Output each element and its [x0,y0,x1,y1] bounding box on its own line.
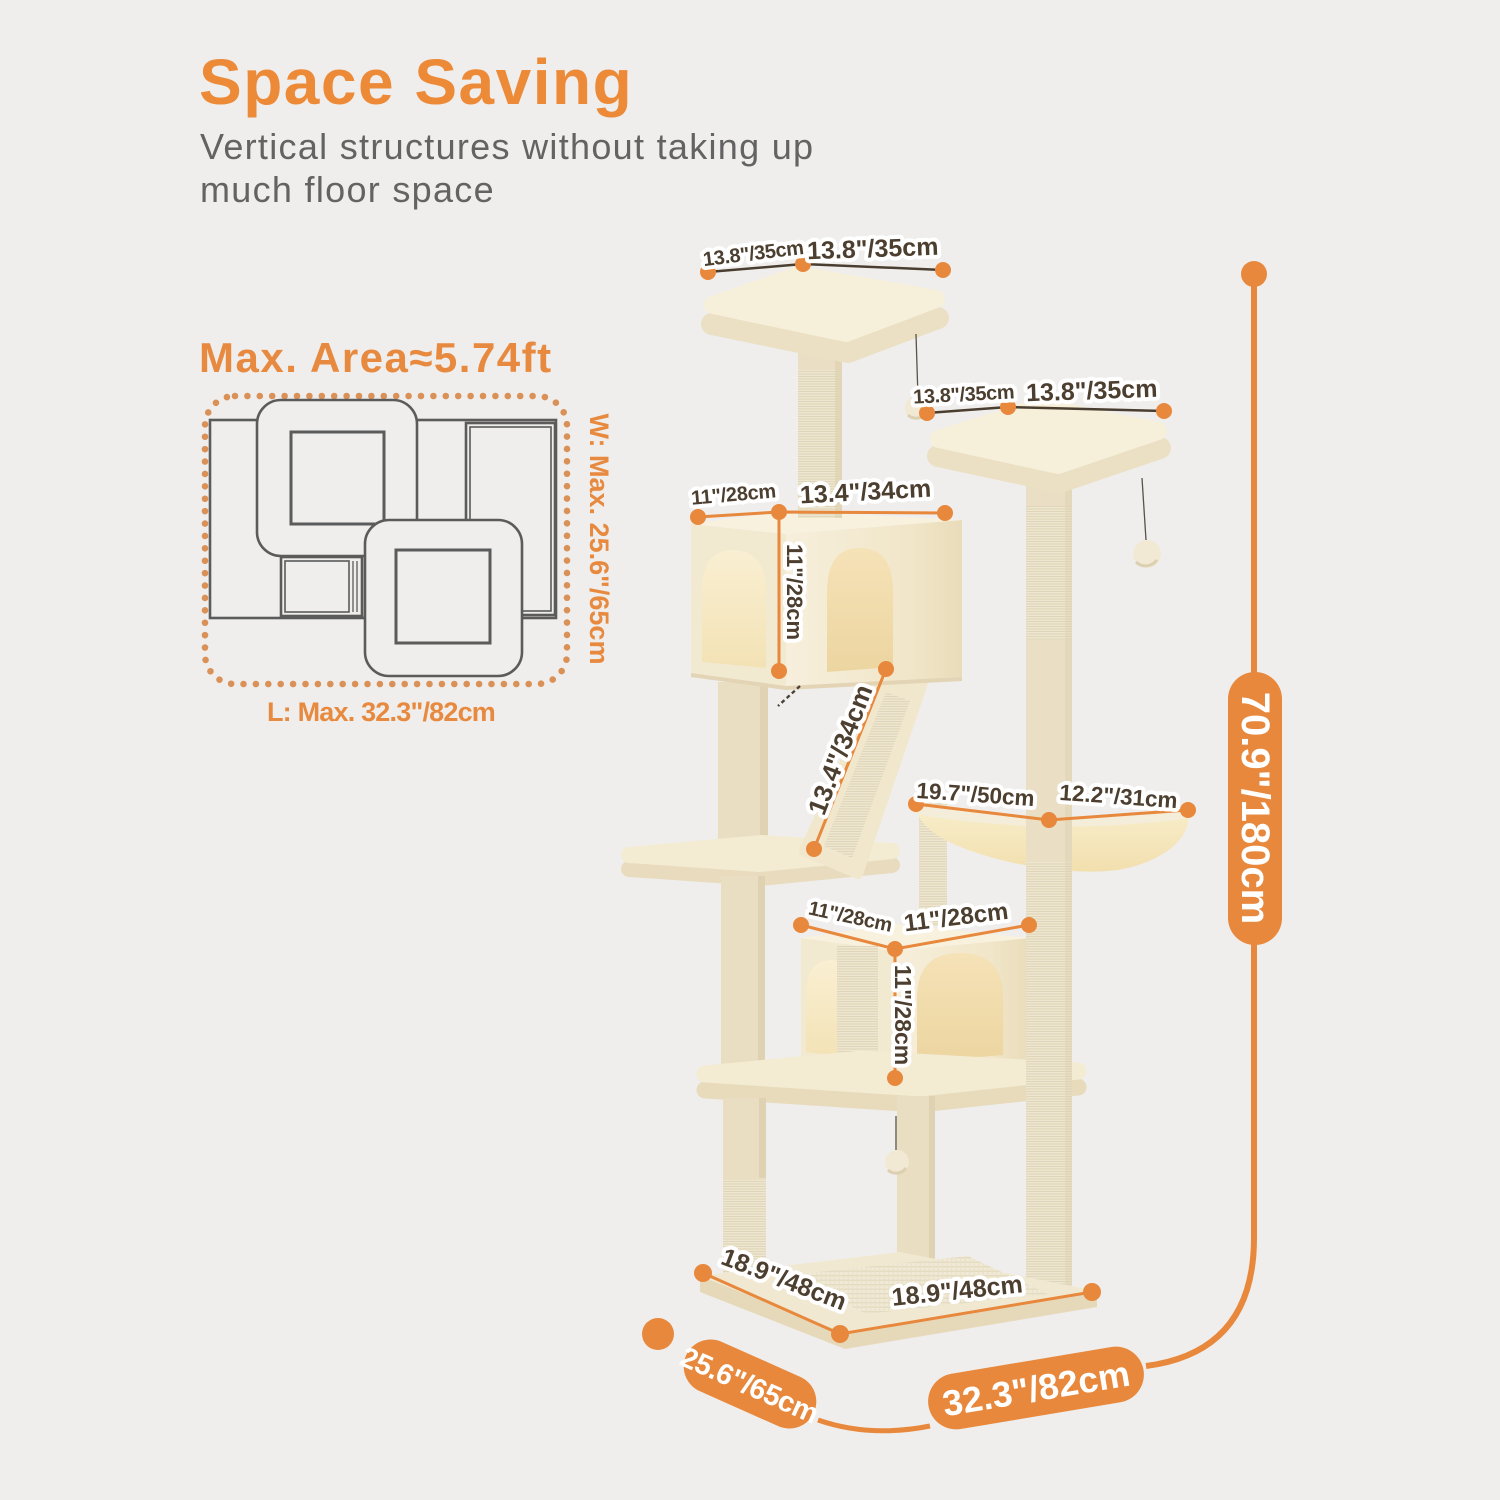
svg-text:L: Max. 32.3"/82cm: L: Max. 32.3"/82cm [267,697,495,727]
svg-text:13.8"/35cm: 13.8"/35cm [807,233,939,266]
svg-text:13.8"/35cm: 13.8"/35cm [1026,375,1158,408]
svg-text:11"/28cm: 11"/28cm [782,544,807,640]
svg-text:Space Saving: Space Saving [199,46,633,118]
svg-text:Max. Area≈5.74ft: Max. Area≈5.74ft [199,334,553,381]
svg-text:70.9"/180cm: 70.9"/180cm [1233,692,1277,924]
svg-text:11"/28cm: 11"/28cm [890,965,916,1065]
svg-text:Vertical structures without ta: Vertical structures without taking up [200,126,814,167]
svg-text:W: Max. 25.6"/65cm: W: Max. 25.6"/65cm [584,414,614,665]
svg-text:much floor space: much floor space [200,169,495,210]
